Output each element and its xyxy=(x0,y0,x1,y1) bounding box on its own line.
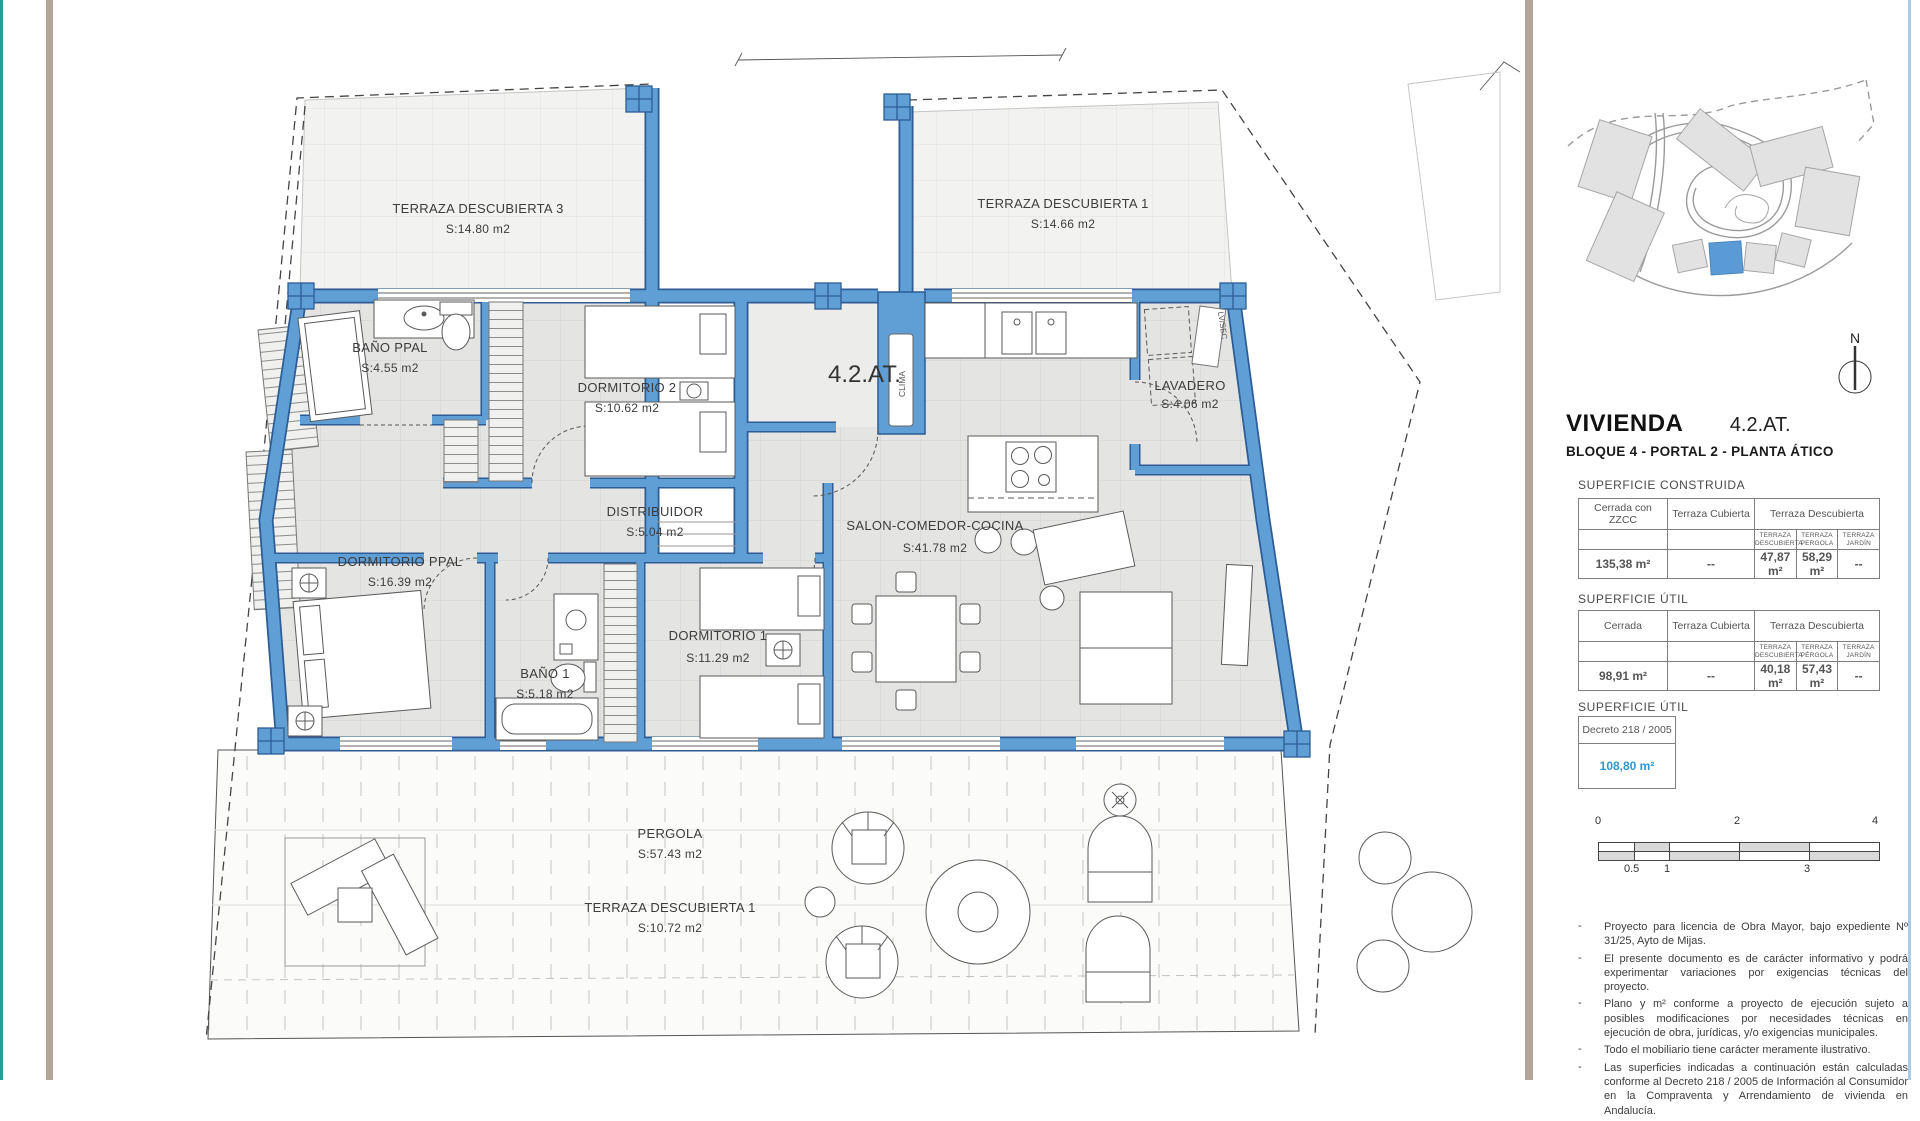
scale-tick-label: 1 xyxy=(1664,863,1670,875)
disclaimer-item: -El presente documento es de carácter in… xyxy=(1578,952,1908,995)
decreto-header: Decreto 218 / 2005 xyxy=(1579,717,1675,744)
value-cell: -- xyxy=(1838,550,1880,579)
sub-header: TERRAZA DESCUBIERTA xyxy=(1755,642,1797,662)
disclaimer-item: -Proyecto para licencia de Obra Mayor, b… xyxy=(1578,920,1908,949)
highlighted-block xyxy=(1709,241,1743,275)
label-dormitorio-2: DORMITORIO 2 xyxy=(578,380,677,395)
svg-text:S:57.43 m2: S:57.43 m2 xyxy=(638,847,702,861)
col-header: Cerrada con ZZCC xyxy=(1579,499,1668,530)
value-cell: 58,29 m² xyxy=(1796,550,1838,579)
section-label-construida: SUPERFICIE CONSTRUIDA xyxy=(1578,478,1745,492)
scale-tick-label: 0.5 xyxy=(1624,863,1639,875)
svg-text:S:4.06 m2: S:4.06 m2 xyxy=(1161,397,1218,411)
label-bano-1: BAÑO 1 xyxy=(520,666,569,681)
svg-text:S:14.80 m2: S:14.80 m2 xyxy=(446,222,510,236)
label-bano-ppal: BAÑO PPAL xyxy=(352,340,427,355)
svg-text:S:5.18 m2: S:5.18 m2 xyxy=(516,687,573,701)
page-subtitle: BLOQUE 4 - PORTAL 2 - PLANTA ÁTICO xyxy=(1566,444,1834,459)
site-location-map xyxy=(1560,66,1886,322)
value-cell: 135,38 m² xyxy=(1579,550,1668,579)
label-salon: SALON-COMEDOR-COCINA xyxy=(846,518,1023,533)
disclaimer-item: -Plano y m² conforme a proyecto de ejecu… xyxy=(1578,997,1908,1040)
label-distribuidor: DISTRIBUIDOR xyxy=(607,504,704,519)
svg-text:S:10.72 m2: S:10.72 m2 xyxy=(638,921,702,935)
value-cell: 98,91 m² xyxy=(1579,662,1668,691)
unit-entry-label: 4.2.AT. xyxy=(828,361,901,388)
svg-text:S:14.66 m2: S:14.66 m2 xyxy=(1031,217,1095,231)
sub-header: TERRAZA PERGOLA xyxy=(1796,530,1838,550)
section-label-util: SUPERFICIE ÚTIL xyxy=(1578,592,1688,606)
value-cell: -- xyxy=(1668,662,1755,691)
value-cell: -- xyxy=(1838,662,1880,691)
label-terraza-1-bottom: TERRAZA DESCUBIERTA 1 xyxy=(584,900,755,915)
decreto-value: 108,80 m² xyxy=(1579,744,1675,788)
sub-header: TERRAZA DESCUBIERTA xyxy=(1755,530,1797,550)
value-cell: 47,87 m² xyxy=(1755,550,1797,579)
floorplan-sheet: { "header": { "title": "VIVIENDA", "unit… xyxy=(0,0,1920,1080)
col-header: Terraza Descubierta xyxy=(1755,499,1880,530)
scale-tick-label: 2 xyxy=(1734,815,1740,827)
svg-text:S:5.04 m2: S:5.04 m2 xyxy=(626,525,683,539)
svg-text:S:16.39 m2: S:16.39 m2 xyxy=(368,575,432,589)
svg-text:S:10.62 m2: S:10.62 m2 xyxy=(595,401,659,415)
svg-text:S:4.55 m2: S:4.55 m2 xyxy=(361,361,418,375)
label-pergola: PERGOLA xyxy=(638,826,703,841)
col-header: Terraza Descubierta xyxy=(1755,611,1880,642)
value-cell: -- xyxy=(1668,550,1755,579)
sub-header: TERRAZA JARDÍN xyxy=(1838,642,1880,662)
clima-shaft-label: CLIMA xyxy=(897,371,907,397)
value-cell: 57,43 m² xyxy=(1796,662,1838,691)
label-dormitorio-ppal: DORMITORIO PPAL xyxy=(338,554,463,569)
unit-code: 4.2.AT. xyxy=(1730,414,1791,437)
disclaimer-item: -Las superficies indicadas a continuació… xyxy=(1578,1061,1908,1118)
disclaimer-item: -Todo el mobiliario tiene carácter meram… xyxy=(1578,1043,1908,1057)
floor-plan-drawing: TERRAZA DESCUBIERTA 3 S:14.80 m2 TERRAZA… xyxy=(0,0,1530,1080)
table-superficie-util: Cerrada Terraza Cubierta Terraza Descubi… xyxy=(1578,610,1880,691)
col-header: Terraza Cubierta xyxy=(1668,611,1755,642)
scale-tick-label: 3 xyxy=(1804,863,1810,875)
sub-header: TERRAZA JARDÍN xyxy=(1838,530,1880,550)
label-dormitorio-1: DORMITORIO 1 xyxy=(669,628,768,643)
page-edge-blue-line xyxy=(1908,0,1911,1080)
scale-tick-label: 4 xyxy=(1872,815,1878,827)
label-lavadero: LAVADERO xyxy=(1154,378,1225,393)
disclaimer-notes: -Proyecto para licencia de Obra Mayor, b… xyxy=(1578,920,1908,1121)
svg-text:S:41.78 m2: S:41.78 m2 xyxy=(903,541,967,555)
sub-header: TERRAZA PÉRGOLA xyxy=(1796,642,1838,662)
scale-bar: 0 2 4 0.5 1 3 xyxy=(1598,830,1880,878)
svg-text:S:11.29 m2: S:11.29 m2 xyxy=(686,651,750,665)
label-terraza-3: TERRAZA DESCUBIERTA 3 xyxy=(392,201,563,216)
page-title: VIVIENDA xyxy=(1566,410,1683,438)
north-label: N xyxy=(1850,330,1860,346)
section-label-util-decreto: SUPERFICIE ÚTIL xyxy=(1578,700,1688,714)
scale-tick-label: 0 xyxy=(1595,815,1601,827)
north-arrow: N xyxy=(1832,330,1878,400)
col-header: Terraza Cubierta xyxy=(1668,499,1755,530)
decreto-box: Decreto 218 / 2005 108,80 m² xyxy=(1578,716,1676,789)
label-terraza-1-top: TERRAZA DESCUBIERTA 1 xyxy=(977,196,1148,211)
table-superficie-construida: Cerrada con ZZCC Terraza Cubierta Terraz… xyxy=(1578,498,1880,579)
col-header: Cerrada xyxy=(1579,611,1668,642)
value-cell: 40,18 m² xyxy=(1755,662,1797,691)
title-block: VIVIENDA 4.2.AT. xyxy=(1566,410,1896,438)
